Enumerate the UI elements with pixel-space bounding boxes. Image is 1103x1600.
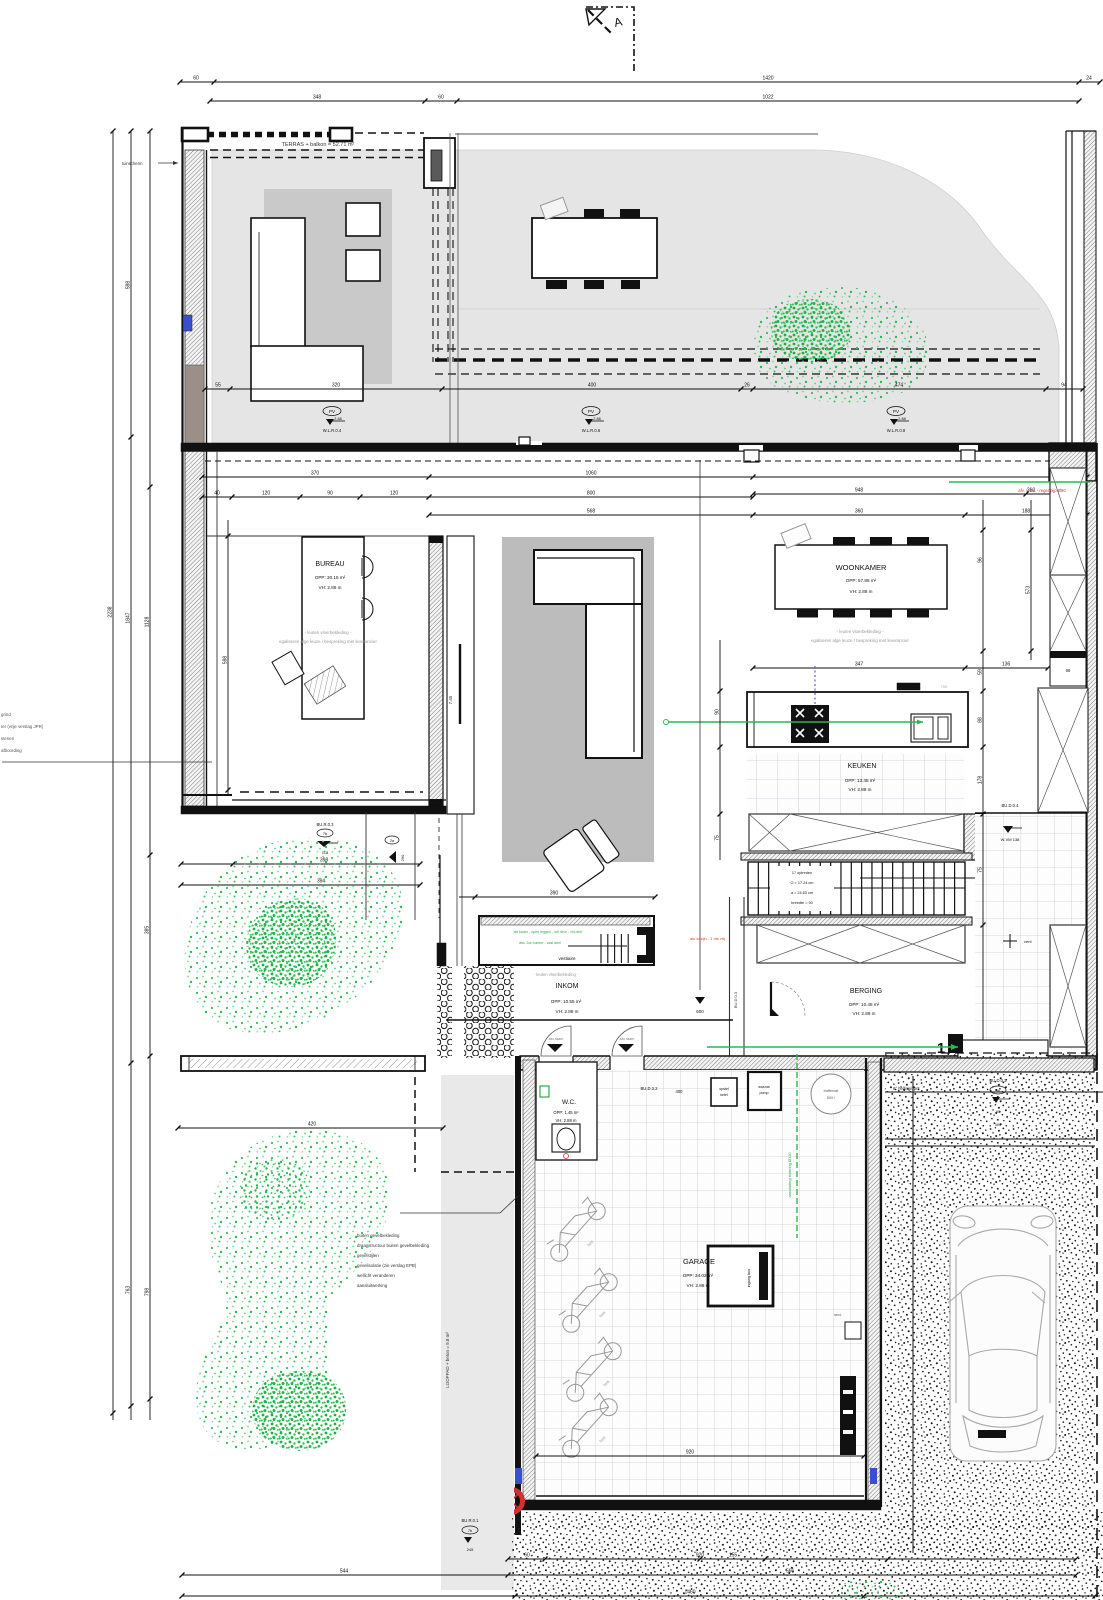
svg-text:2a: 2a (390, 839, 395, 843)
svg-text:VH: 2.88 m: VH: 2.88 m (849, 787, 872, 792)
svg-text:290: 290 (400, 854, 405, 861)
svg-text:59: 59 (978, 669, 984, 675)
svg-text:VH: 2.88 m: VH: 2.88 m (687, 1283, 710, 1288)
svg-text:400: 400 (676, 1089, 684, 1094)
svg-text:PV: PV (329, 409, 335, 414)
svg-text:2.88: 2.88 (593, 417, 600, 421)
svg-text:INKOM: INKOM (556, 983, 579, 990)
svg-text:188: 188 (1022, 509, 1031, 515)
svg-text:TERRAS + balkon = 52.71 m²: TERRAS + balkon = 52.71 m² (282, 142, 355, 148)
svg-text:LOOPPAD + beton = 9.8 m²: LOOPPAD + beton = 9.8 m² (445, 1332, 450, 1388)
svg-text:347: 347 (855, 662, 864, 668)
svg-text:1060: 1060 (585, 471, 596, 477)
svg-text:300: 300 (995, 1122, 1002, 1127)
svg-text:7b: 7b (468, 1529, 472, 1533)
svg-text:afv. r.w.a. - regenpijp Ø80: afv. r.w.a. - regenpijp Ø80 (1018, 488, 1066, 493)
svg-text:598: 598 (126, 281, 132, 290)
svg-text:OPP: 57.88 m²: OPP: 57.88 m² (846, 578, 877, 583)
svg-text:egaliseren alge leuze / bespre: egaliseren alge leuze / bespreking met l… (279, 639, 377, 644)
svg-text:544: 544 (340, 1569, 349, 1575)
svg-text:BU.D.0.4: BU.D.0.4 (1002, 803, 1020, 808)
svg-text:120: 120 (390, 491, 399, 497)
svg-text:40: 40 (214, 491, 220, 497)
svg-text:60: 60 (438, 95, 444, 101)
svg-text:vestiaire: vestiaire (558, 956, 576, 961)
svg-text:17 optreden: 17 optreden (792, 871, 812, 875)
svg-text:1460: 1460 (684, 1590, 695, 1596)
svg-text:BUREAU: BUREAU (315, 561, 344, 568)
svg-text:750: 750 (941, 684, 948, 689)
svg-text:245: 245 (467, 1547, 474, 1552)
svg-text:VH: 2.88 m: VH: 2.88 m (319, 585, 342, 590)
svg-text:VH: 2.88 m: VH: 2.88 m (556, 1009, 579, 1014)
svg-text:W.C.: W.C. (562, 1099, 576, 1106)
svg-text:OPP: 10.55 m²: OPP: 10.55 m² (551, 999, 582, 1004)
svg-text:474: 474 (895, 383, 904, 389)
svg-text:920: 920 (686, 1450, 695, 1456)
svg-text:PV: PV (588, 409, 594, 414)
svg-text:VH: 2.88 m: VH: 2.88 m (556, 1118, 577, 1123)
svg-text:BU.D.0.3: BU.D.0.3 (990, 1078, 1008, 1083)
svg-text:1420: 1420 (762, 76, 773, 82)
svg-text:a = 24.63 cm: a = 24.63 cm (791, 891, 813, 895)
svg-text:948: 948 (855, 488, 864, 494)
svg-text:O = 17.24 cm: O = 17.24 cm (791, 881, 814, 885)
svg-text:1128: 1128 (145, 616, 151, 627)
svg-text:KEUKEN: KEUKEN (848, 763, 877, 770)
svg-text:60: 60 (524, 1553, 530, 1559)
svg-text:136: 136 (1002, 662, 1011, 668)
svg-text:370: 370 (311, 471, 320, 477)
svg-text:OPP: 1.45 m²: OPP: 1.45 m² (553, 1110, 579, 1115)
svg-text:94: 94 (1061, 383, 1067, 389)
svg-text:24: 24 (1086, 76, 1092, 82)
svg-text:WOONKAMER: WOONKAMER (836, 563, 887, 572)
svg-text:OPP: 10.45 m²: OPP: 10.45 m² (849, 1002, 880, 1007)
svg-text:egaliseren alge leuze / bespre: egaliseren alge leuze / bespreking met l… (811, 638, 909, 643)
svg-text:348: 348 (313, 95, 322, 101)
svg-text:PV: PV (893, 409, 899, 414)
svg-text:sect.: sect. (834, 1313, 842, 1317)
svg-text:155: 155 (729, 1553, 738, 1559)
svg-text:BERGING: BERGING (850, 988, 882, 995)
svg-text:VH: 2.88 m: VH: 2.88 m (850, 589, 873, 594)
svg-text:7b: 7b (323, 832, 327, 836)
svg-text:W.L.R.0.8: W.L.R.0.8 (887, 428, 906, 433)
svg-text:W.L.R.0.6: W.L.R.0.6 (582, 428, 601, 433)
svg-text:55: 55 (215, 383, 221, 389)
svg-text:alu kozijn - 1 nis vrij: alu kozijn - 1 nis vrij (690, 936, 725, 941)
svg-text:OPP: 30.15 m²: OPP: 30.15 m² (315, 575, 346, 580)
svg-text:60: 60 (193, 76, 199, 82)
svg-text:178: 178 (978, 776, 984, 785)
svg-text:920: 920 (696, 1553, 705, 1559)
svg-text:alu raam: alu raam (549, 1037, 564, 1041)
svg-text:568: 568 (587, 509, 596, 515)
svg-text:600: 600 (696, 1009, 704, 1014)
svg-text:400: 400 (588, 383, 597, 389)
svg-text:598: 598 (223, 656, 229, 665)
svg-text:afw. 2on kamer - vast deel: afw. 2on kamer - vast deel (519, 941, 561, 945)
svg-text:buffervat: buffervat (824, 1089, 840, 1093)
svg-text:420: 420 (308, 1122, 317, 1128)
svg-text:385: 385 (145, 926, 151, 935)
svg-text:- leuten vloerbekleding -: - leuten vloerbekleding - (534, 972, 579, 977)
svg-text:75: 75 (715, 835, 721, 841)
svg-text:763: 763 (126, 1286, 132, 1295)
svg-text:6° helling/oprit: 6° helling/oprit (893, 1086, 920, 1091)
svg-text:2.88: 2.88 (334, 417, 341, 421)
svg-text:96: 96 (978, 557, 984, 563)
svg-text:ingang bus: ingang bus (747, 1269, 751, 1288)
svg-text:75: 75 (978, 867, 984, 873)
svg-text:tuinscherm: tuinscherm (122, 161, 143, 166)
svg-text:alu raam: alu raam (620, 1037, 635, 1041)
svg-text:90: 90 (327, 491, 333, 497)
svg-text:wasma: wasma (758, 1085, 769, 1089)
svg-text:afboording: afboording (1, 748, 22, 753)
svg-text:W-VM 138: W-VM 138 (1001, 837, 1021, 842)
svg-text:ter (vrije verslag JPR): ter (vrije verslag JPR) (1, 724, 44, 729)
svg-text:wit kader - open leggen - wit: wit kader - open leggen - wit deur - vri… (514, 930, 583, 934)
svg-text:aansluiting riolering Ø110: aansluiting riolering Ø110 (787, 1152, 792, 1198)
svg-text:798: 798 (145, 1288, 151, 1297)
svg-text:BU.D.0.3: BU.D.0.3 (733, 991, 738, 1008)
svg-text:2.88: 2.88 (898, 417, 905, 421)
svg-text:- leuten vloerbekleding -: - leuten vloerbekleding - (837, 629, 884, 634)
svg-text:stenen: stenen (1, 736, 15, 741)
svg-text:BU.D.3.2: BU.D.3.2 (641, 1086, 659, 1091)
svg-text:120: 120 (262, 491, 271, 497)
svg-text:breedte = 90: breedte = 90 (791, 901, 812, 905)
svg-text:68: 68 (1066, 668, 1071, 673)
svg-text:1847: 1847 (126, 612, 132, 623)
svg-text:800: 800 (587, 491, 596, 497)
svg-text:320: 320 (332, 383, 341, 389)
svg-text:OPP: 34.02 m²: OPP: 34.02 m² (683, 1273, 714, 1278)
svg-text:2238: 2238 (108, 606, 114, 617)
svg-text:360: 360 (855, 509, 864, 515)
svg-text:W.L.R.0.4: W.L.R.0.4 (323, 428, 342, 433)
svg-text:26: 26 (744, 383, 750, 389)
svg-text:7.45: 7.45 (448, 695, 453, 704)
svg-text:90: 90 (996, 1109, 1001, 1114)
svg-text:BU.R.0.3: BU.R.0.3 (317, 822, 335, 827)
svg-text:GARAGE: GARAGE (683, 1257, 715, 1266)
svg-text:390: 390 (550, 891, 559, 897)
svg-text:OPP: 13.48 m²: OPP: 13.48 m² (845, 778, 876, 783)
svg-text:- leuten vloerbekleding -: - leuten vloerbekleding - (305, 630, 352, 635)
svg-text:grind: grind (1, 712, 11, 717)
svg-text:A: A (612, 14, 623, 30)
svg-text:gevelisolatie (zie verslag EPB: gevelisolatie (zie verslag EPB) (357, 1263, 417, 1268)
svg-text:573: 573 (1026, 586, 1032, 595)
svg-text:vent: vent (1024, 939, 1032, 944)
svg-text:90: 90 (715, 709, 721, 715)
svg-text:ketel: ketel (720, 1093, 728, 1097)
svg-text:opstel: opstel (719, 1087, 729, 1091)
svg-text:566: 566 (786, 1569, 795, 1575)
svg-text:BU.R.0.1: BU.R.0.1 (462, 1518, 480, 1523)
svg-text:88: 88 (978, 717, 984, 723)
svg-text:500 l: 500 l (827, 1096, 835, 1100)
svg-text:VH: 2.88 m: VH: 2.88 m (853, 1011, 876, 1016)
svg-text:aansluitwerking: aansluitwerking (357, 1283, 388, 1288)
svg-text:1022: 1022 (762, 95, 773, 101)
svg-text:pomp: pomp (760, 1091, 769, 1095)
svg-text:wellicht veranderen: wellicht veranderen (357, 1273, 395, 1278)
